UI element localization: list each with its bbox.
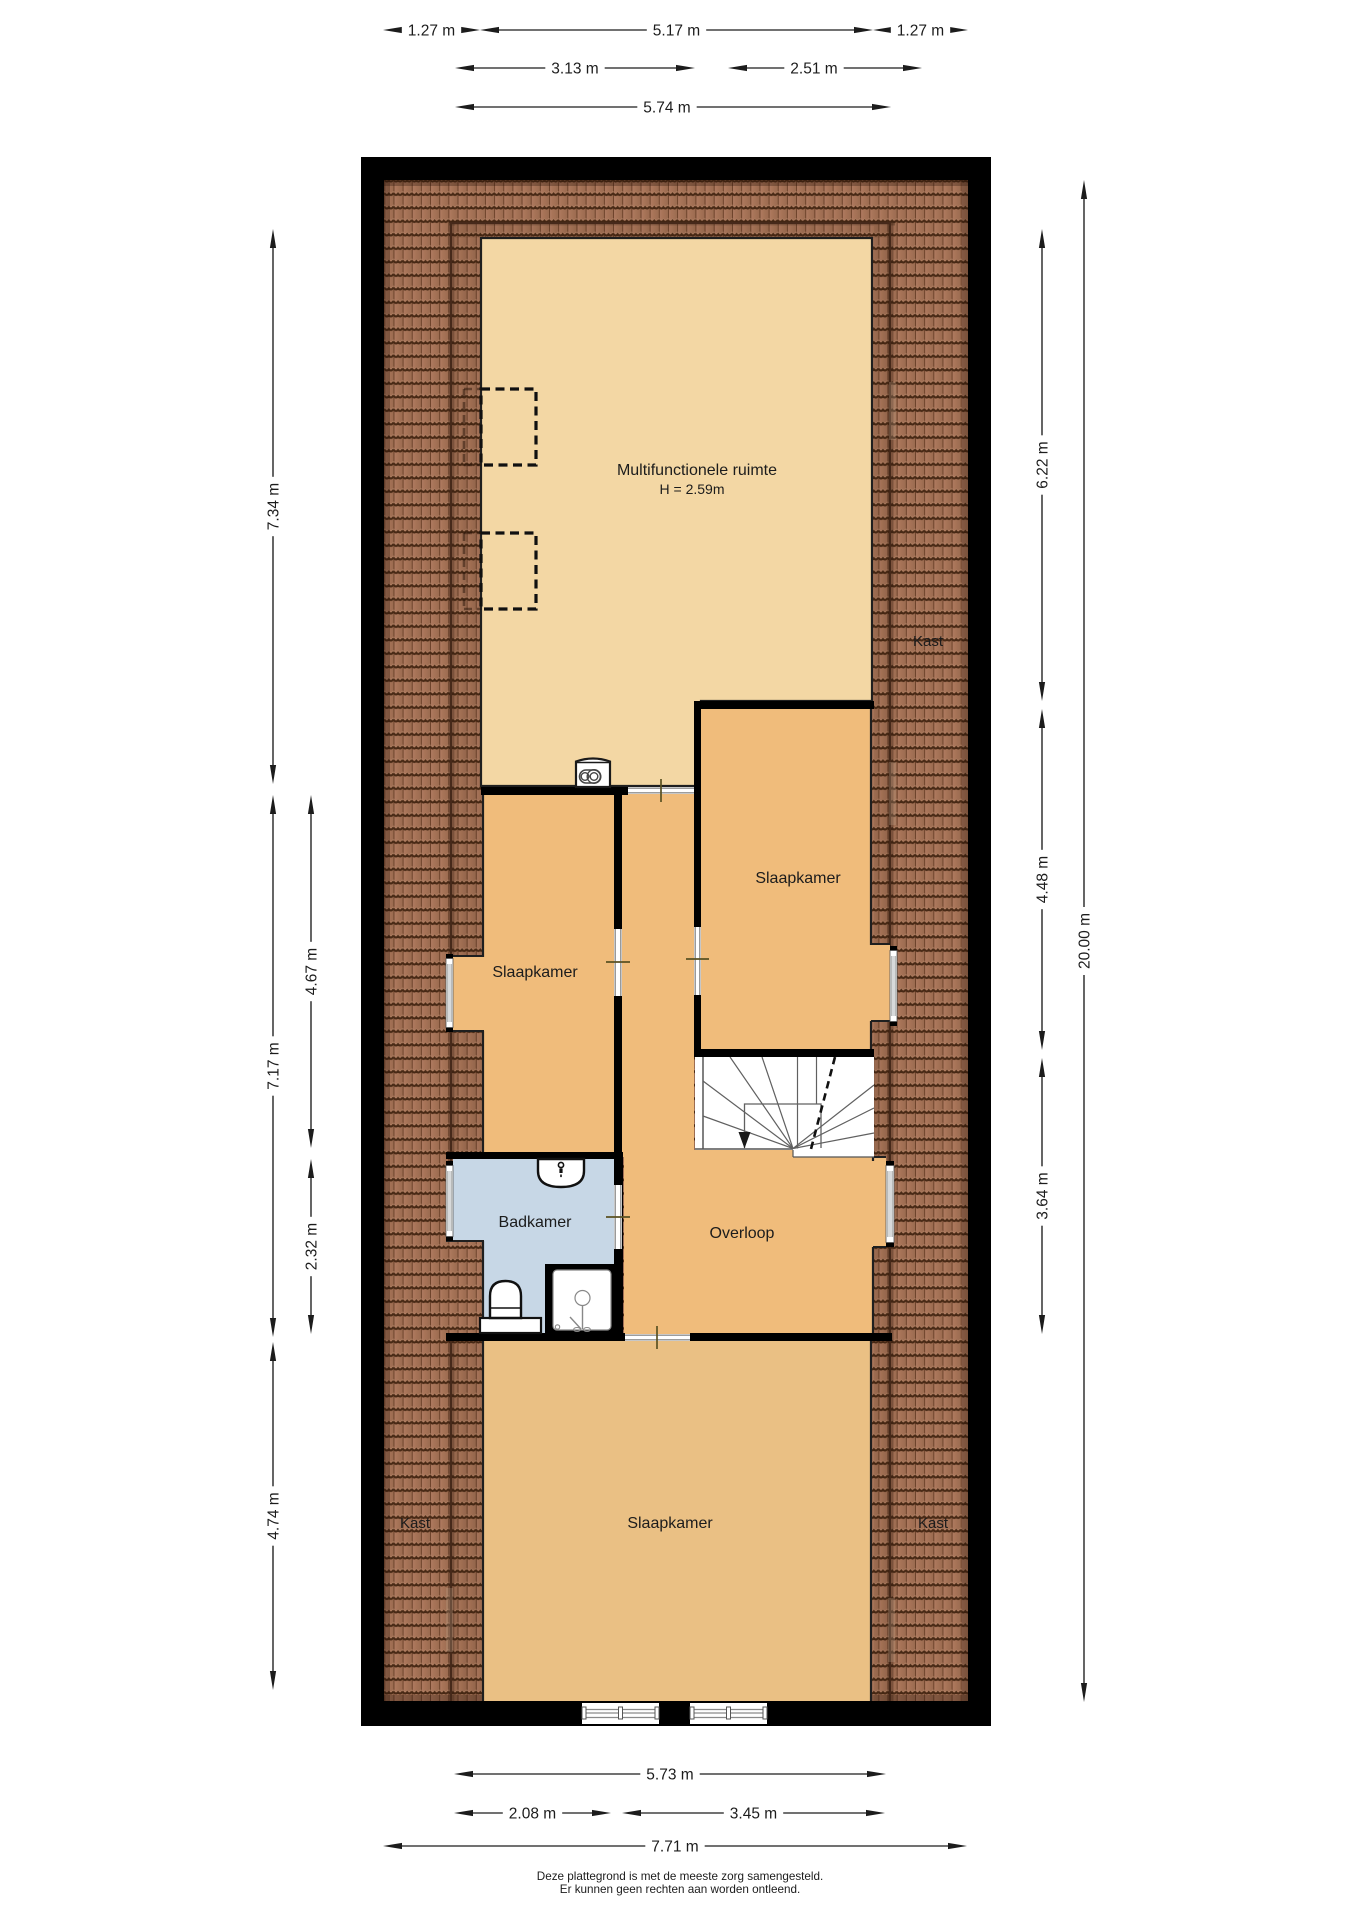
svg-text:Er kunnen geen rechten aan wor: Er kunnen geen rechten aan worden ontlee… <box>560 1883 800 1896</box>
svg-text:2.32 m: 2.32 m <box>303 1223 320 1270</box>
svg-text:2.08 m: 2.08 m <box>509 1805 556 1822</box>
svg-text:Kast: Kast <box>918 1515 949 1532</box>
svg-text:3.45 m: 3.45 m <box>730 1805 777 1822</box>
svg-text:3.13 m: 3.13 m <box>551 60 598 77</box>
svg-text:7.34 m: 7.34 m <box>265 483 282 530</box>
svg-text:Slaapkamer: Slaapkamer <box>627 1515 713 1532</box>
svg-text:6.22 m: 6.22 m <box>1034 441 1051 488</box>
svg-text:1.27 m: 1.27 m <box>408 22 455 39</box>
svg-text:H = 2.59m: H = 2.59m <box>660 481 725 497</box>
svg-text:Badkamer: Badkamer <box>499 1214 573 1231</box>
svg-text:Slaapkamer: Slaapkamer <box>492 964 578 981</box>
svg-text:7.17 m: 7.17 m <box>265 1042 282 1089</box>
svg-text:Multifunctionele ruimte: Multifunctionele ruimte <box>617 462 777 479</box>
svg-text:2.51 m: 2.51 m <box>790 60 837 77</box>
svg-text:20.00 m: 20.00 m <box>1076 913 1093 969</box>
svg-text:5.73 m: 5.73 m <box>646 1766 693 1783</box>
svg-text:4.48 m: 4.48 m <box>1034 856 1051 903</box>
svg-text:3.64 m: 3.64 m <box>1034 1172 1051 1219</box>
svg-text:5.17 m: 5.17 m <box>653 22 700 39</box>
svg-text:Kast: Kast <box>400 1515 431 1532</box>
svg-text:5.74 m: 5.74 m <box>643 99 690 116</box>
svg-text:Slaapkamer: Slaapkamer <box>755 870 841 887</box>
svg-text:1.27 m: 1.27 m <box>897 22 944 39</box>
svg-text:4.74 m: 4.74 m <box>265 1492 282 1539</box>
svg-text:4.67 m: 4.67 m <box>303 948 320 995</box>
svg-text:Kast: Kast <box>913 633 944 650</box>
svg-text:Overloop: Overloop <box>710 1225 775 1242</box>
svg-text:Deze plattegrond is met de mee: Deze plattegrond is met de meeste zorg s… <box>537 1870 824 1883</box>
svg-text:7.71 m: 7.71 m <box>651 1838 698 1855</box>
